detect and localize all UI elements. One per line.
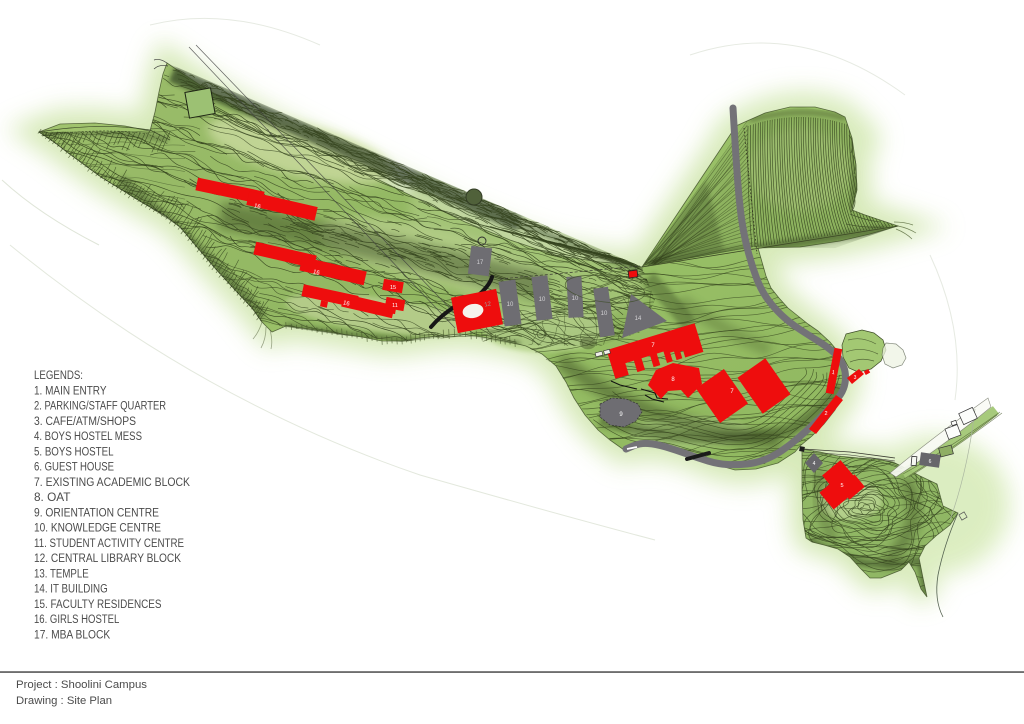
svg-text:10: 10 [539, 297, 546, 303]
svg-text:4: 4 [813, 461, 816, 467]
svg-text:17. MBA BLOCK: 17. MBA BLOCK [34, 627, 111, 641]
svg-text:Drawing : Site Plan: Drawing : Site Plan [16, 695, 112, 707]
svg-text:14. IT BUILDING: 14. IT BUILDING [34, 582, 108, 596]
svg-text:6. GUEST HOUSE: 6. GUEST HOUSE [34, 460, 114, 474]
svg-text:10: 10 [601, 311, 608, 317]
svg-text:2. PARKING/STAFF QUARTER: 2. PARKING/STAFF QUARTER [34, 399, 166, 413]
svg-text:11: 11 [392, 303, 398, 309]
svg-text:Project : Shoolini Campus: Project : Shoolini Campus [16, 679, 148, 691]
svg-text:13. TEMPLE: 13. TEMPLE [34, 566, 89, 580]
svg-text:12. CENTRAL LIBRARY BLOCK: 12. CENTRAL LIBRARY BLOCK [34, 551, 182, 565]
svg-text:10. KNOWLEDGE CENTRE: 10. KNOWLEDGE CENTRE [34, 521, 161, 535]
svg-text:11. STUDENT ACTIVITY CENTRE: 11. STUDENT ACTIVITY CENTRE [34, 536, 184, 550]
svg-text:15. FACULTY RESIDENCES: 15. FACULTY RESIDENCES [34, 597, 162, 611]
svg-text:15: 15 [390, 285, 396, 291]
svg-text:2: 2 [824, 411, 827, 417]
svg-text:3: 3 [854, 375, 857, 381]
svg-text:3. CAFE/ATM/SHOPS: 3. CAFE/ATM/SHOPS [34, 414, 136, 428]
svg-text:8. OAT: 8. OAT [34, 490, 71, 504]
svg-text:9. ORIENTATION CENTRE: 9. ORIENTATION CENTRE [34, 505, 159, 519]
svg-text:10: 10 [507, 302, 514, 308]
svg-text:6: 6 [929, 459, 932, 465]
svg-text:14: 14 [635, 316, 642, 322]
svg-text:5. BOYS HOSTEL: 5. BOYS HOSTEL [34, 444, 114, 458]
svg-text:1. MAIN ENTRY: 1. MAIN ENTRY [34, 383, 107, 397]
svg-text:7. EXISTING ACADEMIC BLOCK: 7. EXISTING ACADEMIC BLOCK [34, 475, 191, 489]
svg-text:4. BOYS HOSTEL MESS: 4. BOYS HOSTEL MESS [34, 429, 142, 443]
svg-text:LEGENDS:: LEGENDS: [34, 368, 83, 382]
svg-text:17: 17 [477, 260, 484, 266]
svg-text:5: 5 [840, 483, 843, 489]
svg-text:10: 10 [572, 296, 579, 302]
svg-text:16. GIRLS HOSTEL: 16. GIRLS HOSTEL [34, 612, 119, 626]
